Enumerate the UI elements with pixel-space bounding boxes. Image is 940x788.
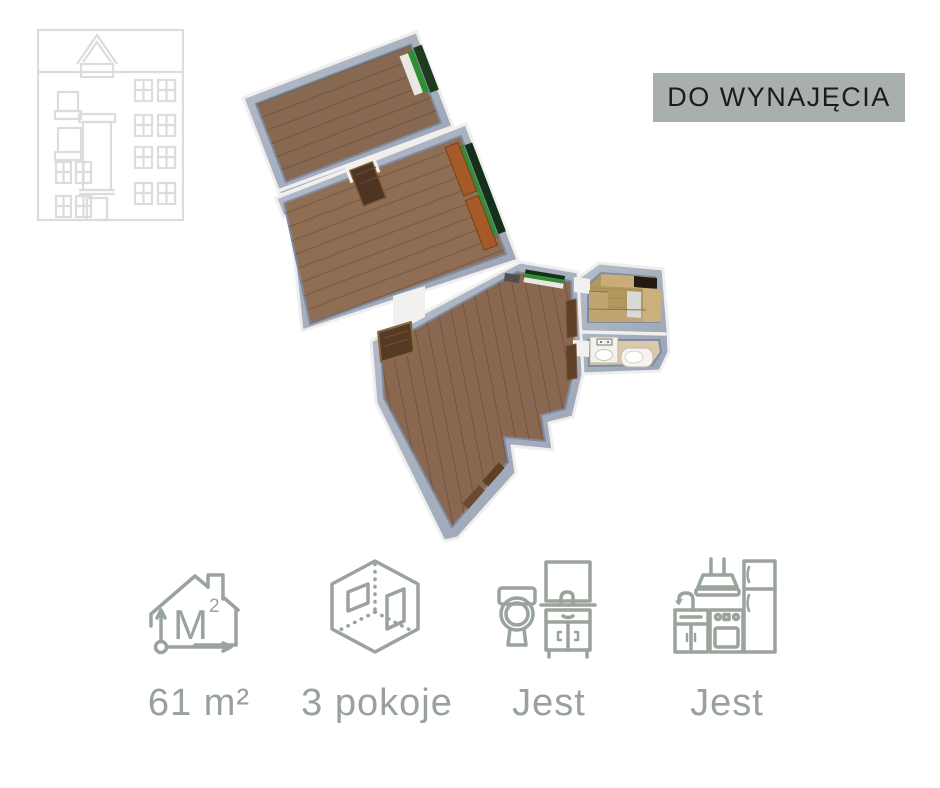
- area-icon-sup-label: 2: [209, 596, 220, 617]
- room-floors: [256, 45, 661, 528]
- status-banner-label: DO WYNAJĘCIA: [667, 82, 891, 113]
- area-house-icon: M 2: [137, 548, 257, 668]
- status-banner: DO WYNAJĘCIA: [653, 73, 905, 122]
- feature-bathroom-label: Jest: [512, 682, 586, 725]
- area-icon-m-label: M: [173, 601, 208, 648]
- rooms-cube-icon: [315, 548, 435, 668]
- feature-rooms-label: 3 pokoje: [301, 682, 453, 725]
- bathroom-icon: [489, 548, 609, 668]
- building-logo-icon: [30, 22, 190, 227]
- feature-area-label: 61 m²: [148, 682, 250, 725]
- kitchen-icon: [667, 548, 787, 668]
- logo-windows: [56, 80, 175, 217]
- feature-kitchen-label: Jest: [690, 682, 764, 725]
- door-kitchen: [566, 299, 577, 338]
- door-bathroom: [566, 344, 577, 380]
